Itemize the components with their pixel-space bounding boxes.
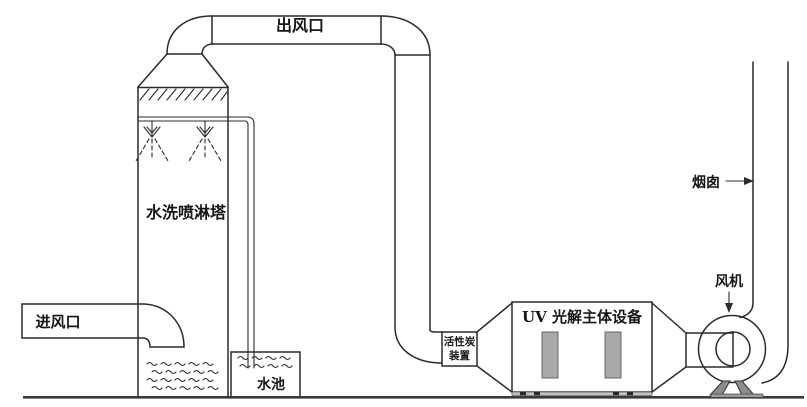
spray-tower [138,54,228,397]
arrow-down-icon [725,292,733,313]
spray-nozzle [189,121,221,161]
spray-header-pipe [139,117,254,368]
uv-foot [534,392,540,395]
uv-foot [627,392,633,395]
process-diagram: 出风口 水洗喷淋塔 进风口 水池 活性炭 装置 UV 光解主体设备 烟囱 风机 [0,0,807,407]
uv-lamp [542,332,558,378]
label-uv: UV 光解主体设备 [522,308,643,326]
label-tower: 水洗喷淋塔 [146,203,227,222]
fan-leg [735,381,754,395]
label-fan: 风机 [715,273,743,290]
label-carbon-line1: 活性炭 [444,335,476,348]
contraction-cone [652,303,686,392]
arrow-right-icon [726,177,754,185]
fan-leg [710,381,730,395]
uv-foot [613,392,619,395]
spray-nozzle [136,121,168,161]
label-pool: 水池 [257,376,285,393]
fan [686,316,766,398]
packing-hatch [140,89,227,100]
expansion-cone [477,303,512,392]
label-outlet: 出风口 [276,16,324,35]
label-inlet: 进风口 [35,313,80,331]
uv-lamp [605,332,621,378]
label-carbon-line2: 装置 [448,349,470,362]
down-pipe [395,55,442,363]
fan-base [711,394,763,397]
uv-foot [520,392,526,395]
label-chimney: 烟囱 [692,174,720,191]
chimney [740,62,788,383]
tower-water-waves [147,363,218,390]
